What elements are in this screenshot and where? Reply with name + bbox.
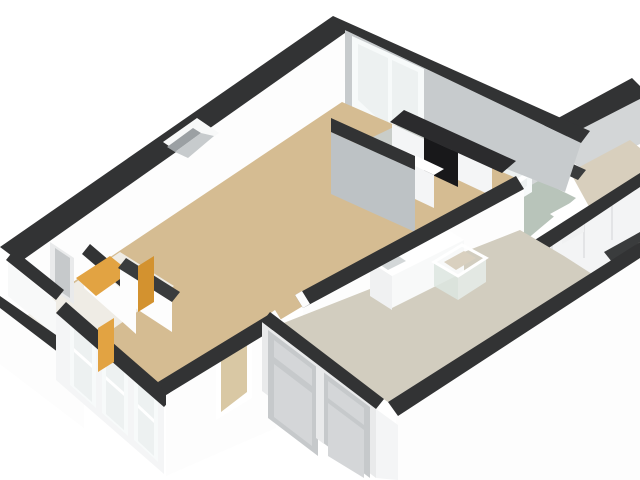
doors-center-stile: [316, 366, 324, 444]
floorplan-canvas: [0, 0, 640, 480]
floorplan-3d-render: [0, 0, 640, 480]
